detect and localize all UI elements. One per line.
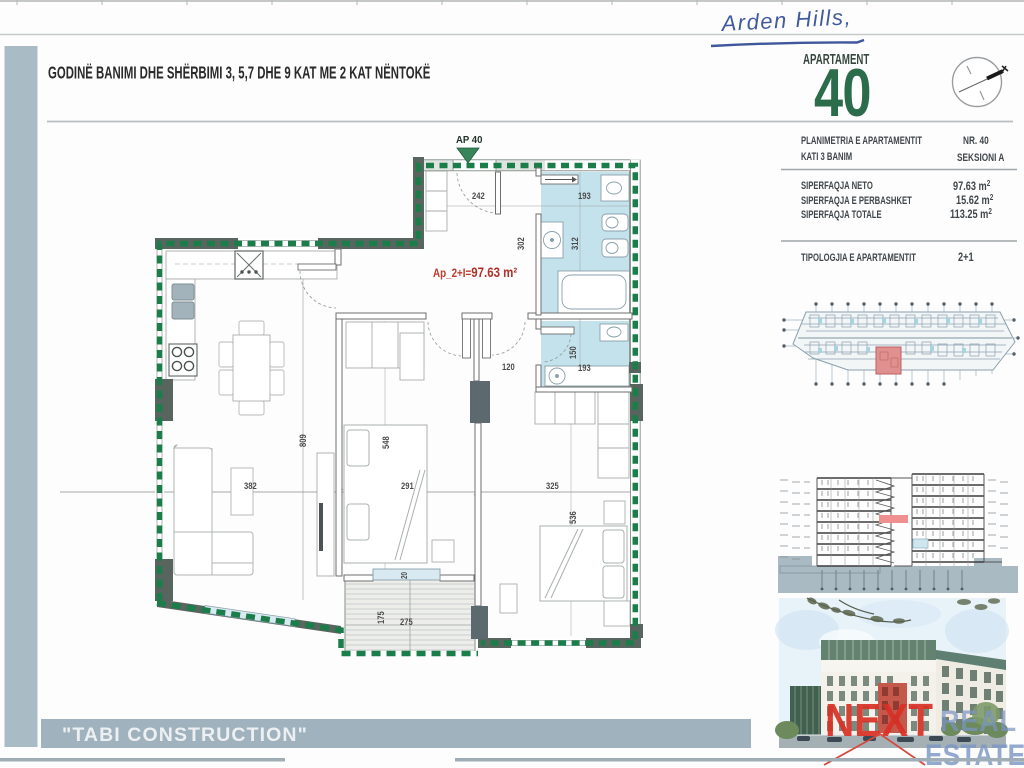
- svg-text:150: 150: [567, 346, 578, 359]
- svg-text:97.63 m2: 97.63 m2: [953, 178, 990, 193]
- svg-text:312: 312: [569, 237, 580, 250]
- svg-text:536: 536: [567, 511, 578, 524]
- svg-text:242: 242: [472, 190, 485, 201]
- svg-text:KATI 3 BANIM: KATI 3 BANIM: [801, 151, 852, 164]
- svg-text:275: 275: [400, 616, 413, 627]
- svg-text:ESTATE: ESTATE: [925, 737, 1024, 768]
- svg-text:113.25 m2: 113.25 m2: [950, 206, 992, 221]
- svg-text:AP 40: AP 40: [456, 134, 482, 146]
- svg-text:809: 809: [297, 434, 308, 447]
- svg-text:NR. 40: NR. 40: [963, 135, 989, 147]
- svg-text:120: 120: [502, 361, 515, 372]
- svg-text:193: 193: [578, 190, 591, 201]
- svg-text:TIPOLOGJIA E APARTAMENTIT: TIPOLOGJIA E APARTAMENTIT: [801, 252, 916, 265]
- svg-text:302: 302: [515, 237, 526, 250]
- svg-text:382: 382: [244, 480, 257, 491]
- svg-text:Ap_2+I=97.63 m²: Ap_2+I=97.63 m²: [433, 264, 517, 280]
- svg-text:15.62 m2: 15.62 m2: [956, 192, 993, 207]
- svg-text:40: 40: [814, 54, 871, 130]
- svg-text:175: 175: [375, 611, 386, 624]
- svg-text:SEKSIONI A: SEKSIONI A: [957, 152, 1004, 164]
- svg-text:"TABI CONSTRUCTION": "TABI CONSTRUCTION": [62, 724, 308, 746]
- svg-text:SIPERFAQJA E PERBASHKET: SIPERFAQJA E PERBASHKET: [801, 195, 912, 208]
- svg-text:GODINË BANIMI DHE SHËRBIMI 3,: GODINË BANIMI DHE SHËRBIMI 3, 5,7 DHE 9 …: [48, 63, 430, 83]
- svg-text:325: 325: [546, 480, 559, 491]
- svg-text:193: 193: [578, 362, 591, 373]
- svg-text:2+1: 2+1: [958, 252, 974, 264]
- svg-text:291: 291: [401, 480, 414, 491]
- svg-text:PLANIMETRIA E APARTAMENTIT: PLANIMETRIA E APARTAMENTIT: [801, 135, 922, 148]
- svg-text:SIPERFAQJA TOTALE: SIPERFAQJA TOTALE: [801, 209, 882, 222]
- svg-text:548: 548: [380, 436, 391, 449]
- svg-text:SIPERFAQJA NETO: SIPERFAQJA NETO: [801, 180, 873, 193]
- svg-text:NEXT: NEXT: [825, 696, 933, 747]
- svg-text:20: 20: [399, 572, 409, 579]
- svg-text:REAL: REAL: [940, 705, 1017, 739]
